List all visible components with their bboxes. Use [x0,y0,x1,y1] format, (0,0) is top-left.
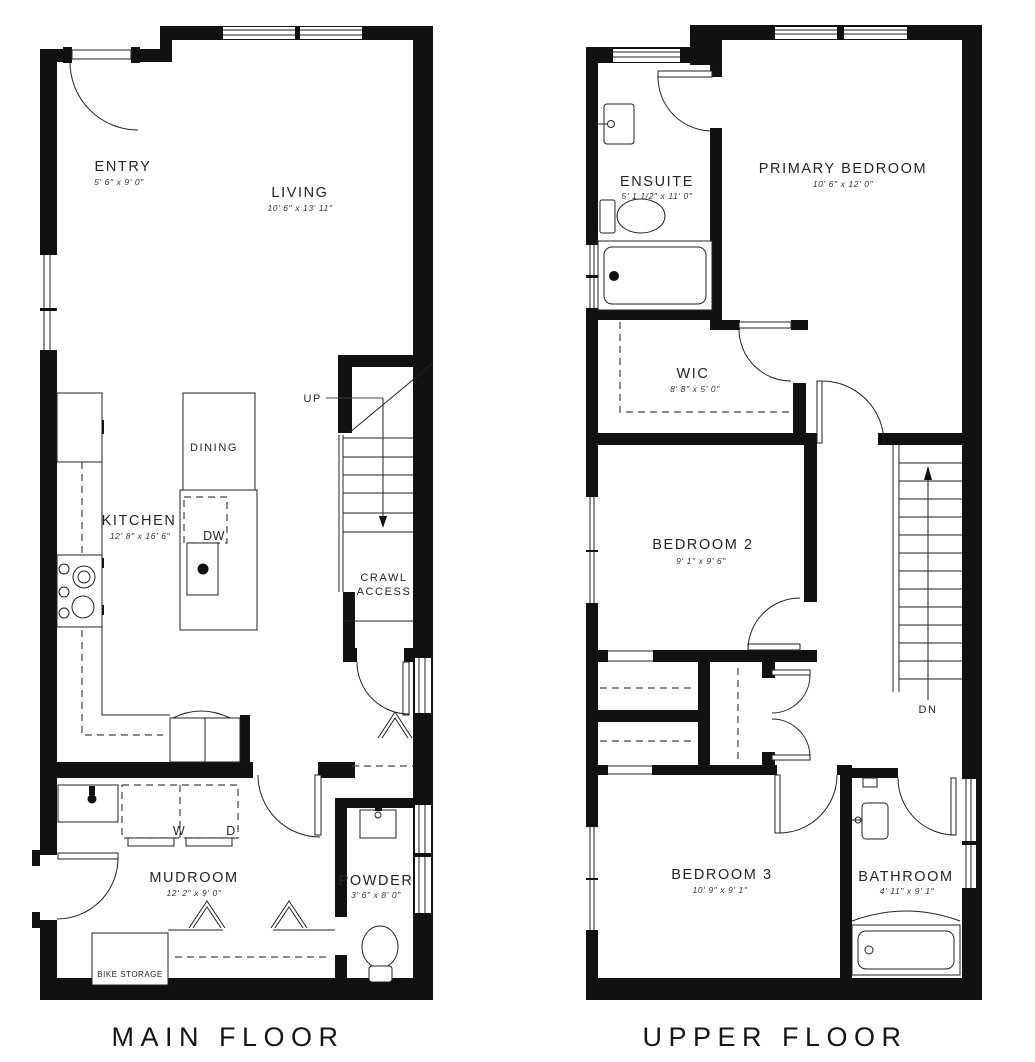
kitchen-island [180,490,257,630]
ensuite-toilet-bowl [617,199,665,233]
entry-door [70,50,138,130]
dishwasher-label: DW [203,529,225,543]
bifold-door [271,901,307,928]
wic-door [739,322,791,381]
room-dims-powder: 3' 6" x 8' 0" [351,890,401,900]
dryer-label: D [226,824,236,838]
room-dims-mudroom: 12' 2" x 9' 0" [166,888,221,898]
room-dims-bathroom: 4' 11" x 9' 1" [880,886,935,896]
hall-closet-door [352,662,413,766]
floorplan-drawing: ENTRY 5' 6" x 9' 0" LIVING 10' 6" x 13' … [0,0,1035,1062]
room-label-living: LIVING [271,185,328,201]
bathroom-shelf [863,778,877,787]
room-dims-bedroom2: 9' 1" x 9' 6" [676,556,726,566]
primary-bedroom-door [817,381,884,443]
main-floor-plan: ENTRY 5' 6" x 9' 0" LIVING 10' 6" x 13' … [32,26,433,1052]
mudroom-sink-fixture [58,785,118,822]
floorplan-page: ENTRY 5' 6" x 9' 0" LIVING 10' 6" x 13' … [0,0,1035,1062]
room-dims-kitchen: 12' 8" x 16' 6" [110,531,171,541]
washer-label: W [173,824,185,838]
room-label-ensuite: ENSUITE [620,174,694,190]
room-dims-primary-bedroom: 10' 6" x 12' 0" [813,179,874,189]
upper-stairs [893,445,962,700]
room-dims-entry: 5' 6" x 9' 0" [94,177,144,187]
room-dims-bedroom3: 10' 9" x 9' 1" [692,885,747,895]
ensuite-sink-fixture [604,104,634,144]
bedroom3-door [775,775,837,833]
dn-label: DN [918,704,937,716]
ensuite-toilet-tank [600,200,615,233]
room-label-bedroom3: BEDROOM 3 [671,867,772,883]
ensuite-fixtures [598,104,712,310]
powder-sink-fixture [360,810,396,838]
stove-fixture [57,555,102,627]
upper-floor-plan: ENSUITE 5' 1 1/2" x 11' 0" PRIMARY BEDRO… [586,25,982,1052]
toilet-fixture [362,926,398,968]
up-arrow-head [379,516,387,528]
room-dims-living: 10' 6" x 13' 11" [267,203,332,213]
shower-curtain-line [852,911,960,921]
room-label-entry: ENTRY [95,159,152,175]
upper-floor-title: UPPER FLOOR [642,1022,907,1052]
main-floor-title: MAIN FLOOR [111,1022,344,1052]
fridge-fixture [57,393,102,462]
up-label: UP [304,393,322,405]
room-label-powder: POWDER [339,873,414,889]
room-label-wic: WIC [677,366,710,382]
room-label-bedroom2: BEDROOM 2 [652,537,753,553]
bifold-door [189,901,225,928]
room-label-primary-bedroom: PRIMARY BEDROOM [759,161,928,177]
ensuite-door [658,71,712,131]
room-label-mudroom: MUDROOM [149,870,238,886]
mudroom-door [258,775,321,837]
bathroom-door [898,778,956,835]
room-label-kitchen: KITCHEN [102,513,177,529]
crawl-access-label-2: ACCESS [357,586,412,598]
room-label-dining: DINING [190,442,238,454]
bedroom2-door [748,598,800,650]
bike-storage-label: BIKE STORAGE [97,970,162,979]
bathroom-sink-fixture [862,803,888,839]
room-label-bathroom: BATHROOM [858,869,954,885]
room-dims-wic: 8' 8" x 5' 0" [670,384,720,394]
dn-arrow-head [924,466,932,480]
hall-closet-double-doors [772,670,810,760]
crawl-access-label-1: CRAWL [360,572,407,584]
room-dims-ensuite: 5' 1 1/2" x 11' 0" [622,191,693,201]
side-entry-door [40,853,118,920]
